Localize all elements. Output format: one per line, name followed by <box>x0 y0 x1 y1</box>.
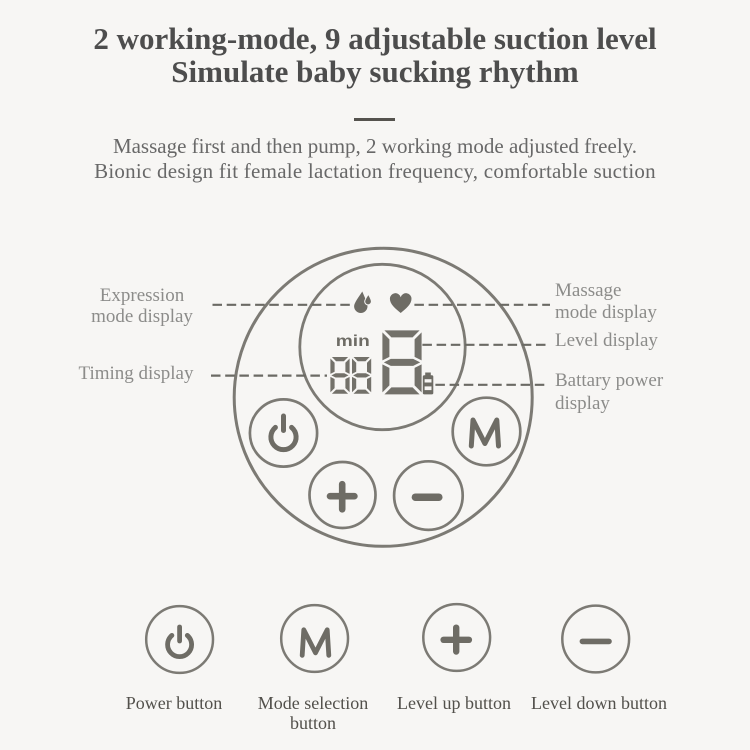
svg-text:min: min <box>336 333 370 350</box>
